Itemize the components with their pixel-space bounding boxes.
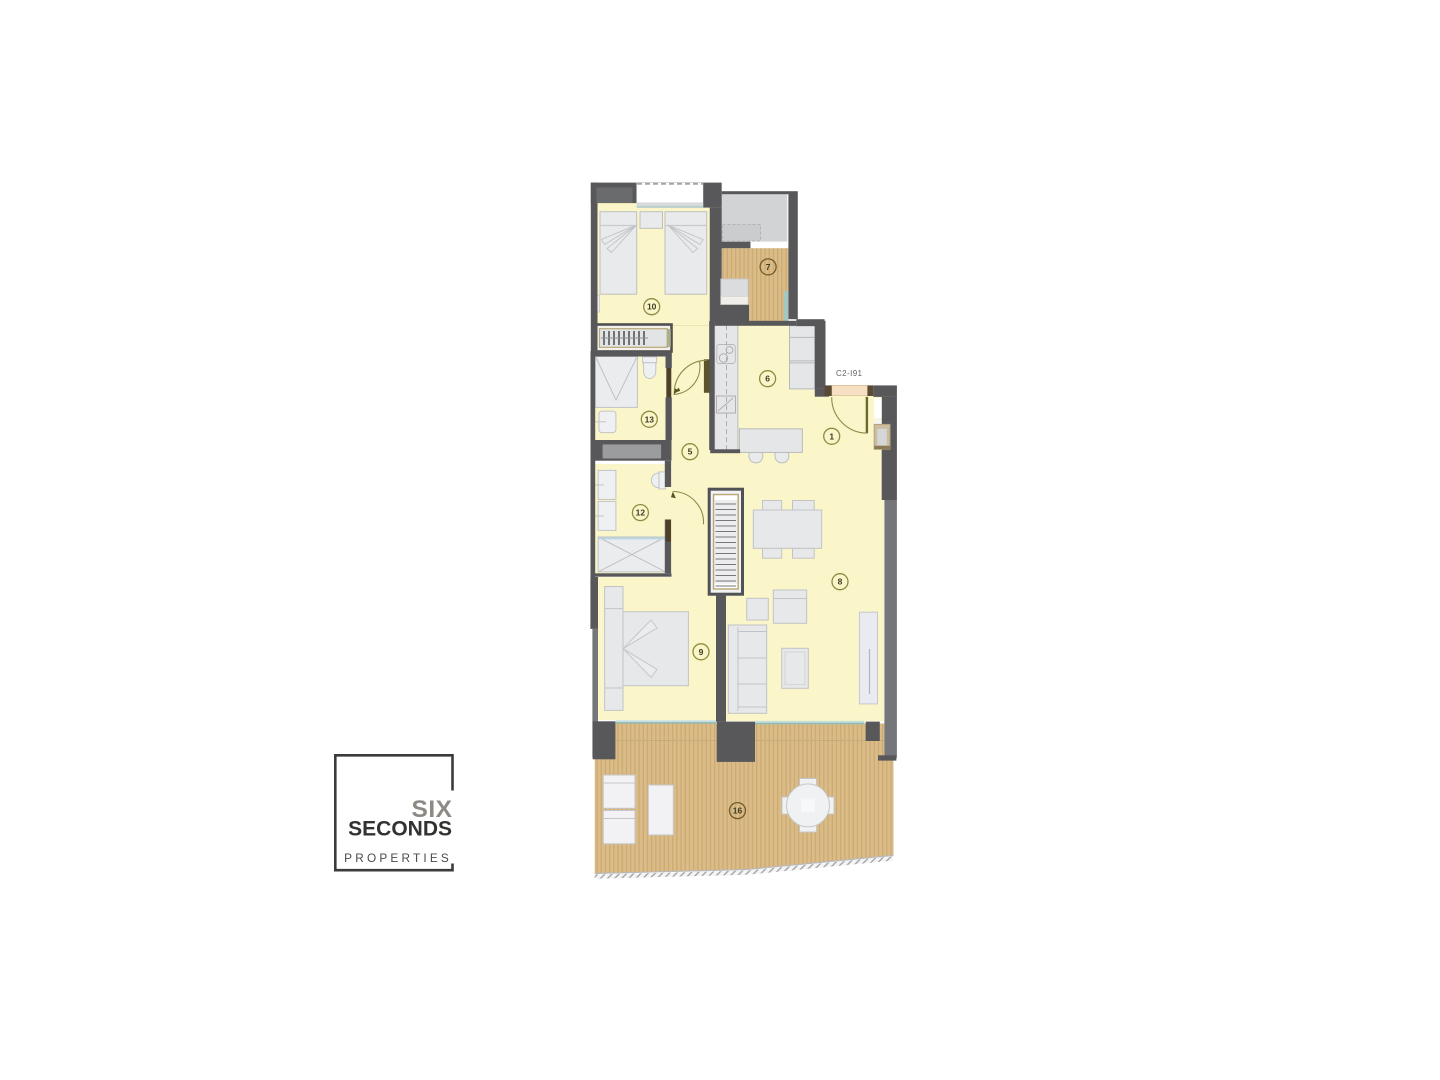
svg-text:12: 12 xyxy=(636,508,646,518)
svg-text:10: 10 xyxy=(647,302,657,312)
svg-text:PROPERTIES: PROPERTIES xyxy=(344,851,452,865)
svg-text:9: 9 xyxy=(699,647,704,657)
svg-text:13: 13 xyxy=(645,414,655,424)
svg-text:7: 7 xyxy=(766,262,771,272)
svg-text:6: 6 xyxy=(765,374,770,384)
svg-text:8: 8 xyxy=(838,577,843,587)
svg-text:16: 16 xyxy=(733,806,743,816)
svg-text:SECONDS: SECONDS xyxy=(348,818,452,841)
svg-text:1: 1 xyxy=(829,431,834,441)
svg-text:5: 5 xyxy=(688,447,693,457)
svg-text:C2-I91: C2-I91 xyxy=(836,369,863,378)
